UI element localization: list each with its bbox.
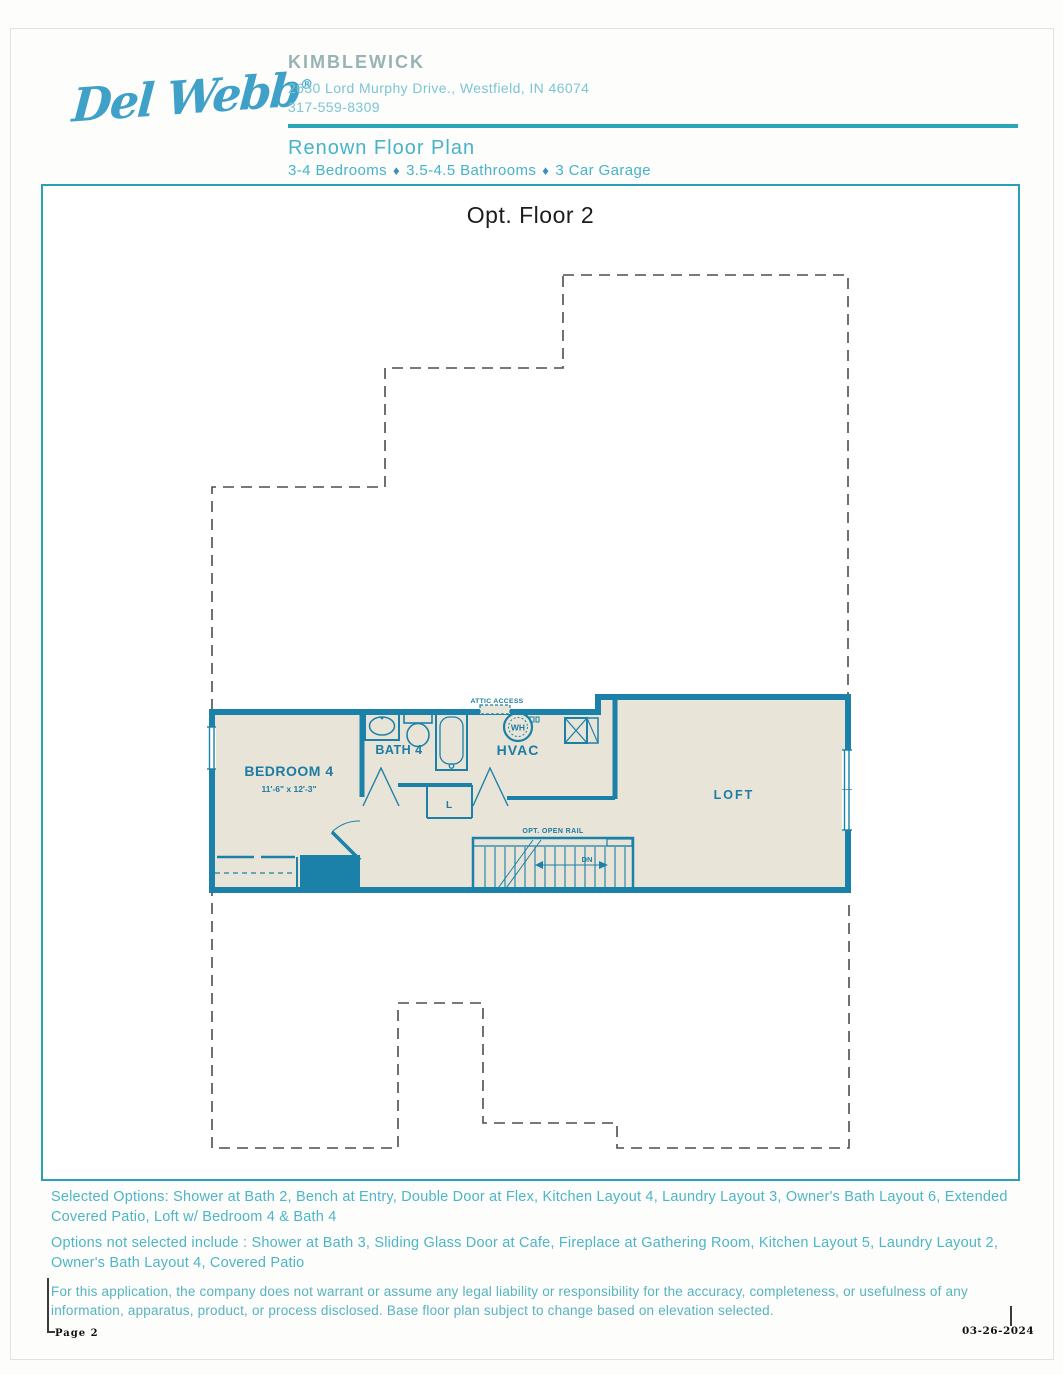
floor-plan-drawing: L <box>41 184 1020 1181</box>
water-heater-label: WH <box>511 723 525 733</box>
page-number: Page 2 <box>55 1328 99 1339</box>
attic-access-hatch <box>480 705 510 714</box>
spec-bathrooms: 3.5-4.5 Bathrooms <box>406 162 536 179</box>
bedroom4-dimensions: 11'-6" x 12'-3" <box>261 784 316 794</box>
stairs-down-label: DN <box>582 855 593 864</box>
diamond-separator-icon: ♦ <box>536 163 555 178</box>
hvac-label: HVAC <box>497 742 540 758</box>
bedroom-window <box>207 727 216 769</box>
attic-access-label: ATTIC ACCESS <box>470 698 523 705</box>
floor-plan-sheet: Del Webb® KIMBLEWICK 2630 Lord Murphy Dr… <box>0 0 1063 1375</box>
scan-artifact-tick <box>1010 1306 1012 1326</box>
scan-artifact-corner <box>47 1331 55 1333</box>
community-address: 2630 Lord Murphy Drive., Westfield, IN 4… <box>288 80 589 96</box>
loft-window-lower <box>842 790 852 830</box>
loft-window-upper <box>842 750 852 790</box>
print-date: 03-26-2024 <box>962 1325 1034 1337</box>
bedroom4-label: BEDROOM 4 <box>244 763 333 779</box>
scan-artifact-line <box>47 1278 49 1332</box>
community-name: KIMBLEWICK <box>288 52 589 73</box>
not-selected-options-text: Options not selected include : Shower at… <box>51 1233 1014 1273</box>
open-rail-label: OPT. OPEN RAIL <box>522 828 584 835</box>
header-divider <box>288 124 1018 128</box>
header-info: KIMBLEWICK 2630 Lord Murphy Drive., West… <box>288 52 589 115</box>
solid-chase <box>300 855 360 889</box>
diamond-separator-icon: ♦ <box>387 163 406 178</box>
bath4-label: BATH 4 <box>375 743 422 757</box>
loft-label: LOFT <box>714 788 755 802</box>
del-webb-logo-text: Del Webb <box>70 62 301 132</box>
spec-bedrooms: 3-4 Bedrooms <box>288 162 387 179</box>
plan-name: Renown Floor Plan <box>288 137 475 160</box>
floor-plan-frame: Opt. Floor 2 L <box>41 184 1020 1181</box>
community-phone: 317-559-8309 <box>288 99 589 115</box>
linen-label: L <box>446 800 452 811</box>
disclaimer-text: For this application, the company does n… <box>51 1283 1014 1320</box>
selected-options-text: Selected Options: Shower at Bath 2, Benc… <box>51 1187 1014 1227</box>
plan-specs: 3-4 Bedrooms♦3.5-4.5 Bathrooms♦3 Car Gar… <box>288 162 651 179</box>
del-webb-logo: Del Webb® <box>70 61 314 132</box>
spec-garage: 3 Car Garage <box>555 162 651 179</box>
